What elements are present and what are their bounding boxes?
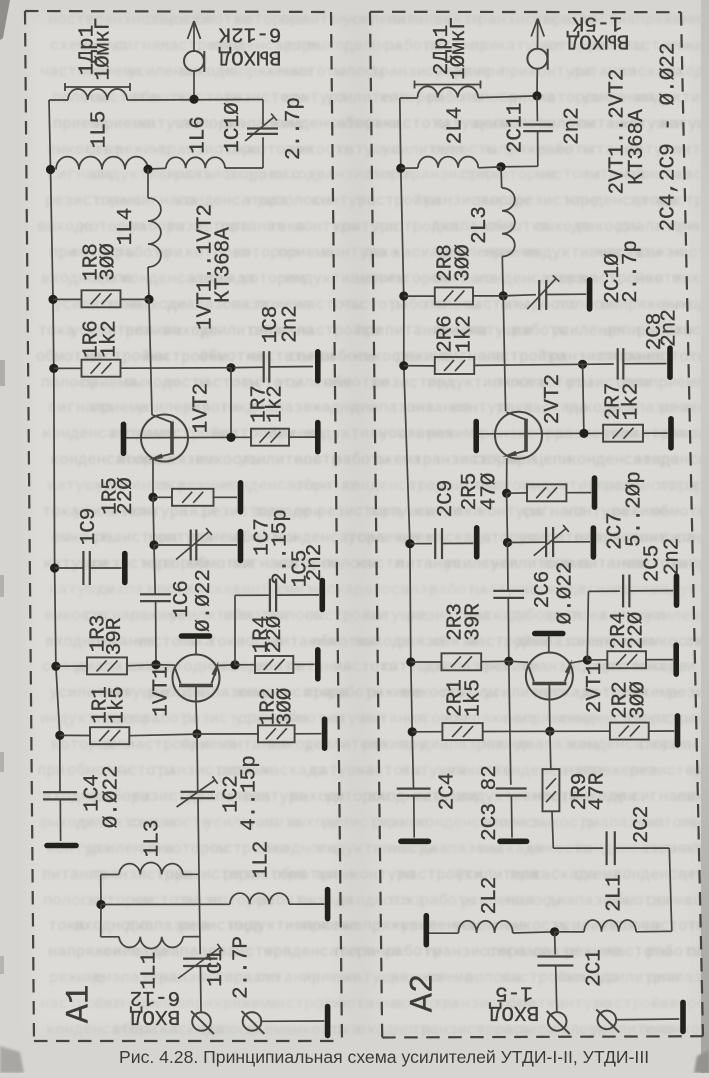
svg-text:2n2: 2n2	[562, 107, 585, 145]
svg-text:2L3: 2L3	[469, 206, 492, 244]
svg-text:КТ368А: КТ368А	[213, 227, 236, 303]
svg-text:А1: А1	[61, 985, 98, 1023]
svg-text:22Ø: 22Ø	[264, 616, 287, 654]
svg-text:2C6: 2C6	[532, 571, 555, 609]
svg-text:1L1: 1L1	[139, 952, 162, 990]
svg-text:выходедиапазонасвязиностиусиле: выходедиапазонасвязиностиусилениясвязивы…	[40, 814, 709, 832]
svg-text:1L4: 1L4	[115, 208, 138, 246]
svg-text:4..15p: 4..15p	[239, 755, 262, 831]
svg-text:Ø.Ø22: Ø.Ø22	[100, 765, 123, 828]
svg-text:1ØмкГ: 1ØмкГ	[93, 17, 116, 80]
svg-text:1L2: 1L2	[251, 841, 274, 879]
svg-text:2n2: 2n2	[659, 309, 682, 347]
svg-text:конденсатораполосысвязиемкость: конденсатораполосысвязиемкостьусилителян…	[50, 451, 709, 469]
svg-text:Рис. 4.28. Принципиальная схем: Рис. 4.28. Принципиальная схема усилител…	[119, 1047, 649, 1067]
svg-text:2..7p: 2..7p	[620, 240, 643, 303]
svg-text:2C4: 2C4	[437, 773, 460, 811]
svg-text:2n2: 2n2	[280, 305, 303, 343]
svg-text:3ØØ: 3ØØ	[628, 681, 651, 719]
svg-text:2C1: 2C1	[584, 949, 607, 987]
svg-text:2VT1: 2VT1	[584, 663, 607, 713]
svg-text:2C4,2C9 - Ø.Ø22: 2C4,2C9 - Ø.Ø22	[658, 42, 681, 231]
svg-text:1L6: 1L6	[188, 116, 211, 154]
svg-text:1k2: 1k2	[621, 383, 644, 421]
svg-text:22Ø: 22Ø	[626, 612, 649, 650]
svg-text:2..7P: 2..7P	[231, 936, 254, 999]
svg-text:47Ø: 47Ø	[479, 473, 502, 511]
svg-text:3ØØ: 3ØØ	[98, 243, 121, 281]
svg-text:6-12: 6-12	[130, 985, 180, 1008]
svg-text:1C6: 1C6	[171, 580, 194, 618]
svg-text:1ØмкГ: 1ØмкГ	[448, 17, 471, 80]
svg-text:2L2: 2L2	[479, 877, 502, 915]
svg-text:39R: 39R	[463, 603, 486, 641]
svg-text:1k2: 1k2	[99, 320, 122, 358]
svg-text:1VT2: 1VT2	[191, 383, 214, 433]
svg-text:1k2: 1k2	[265, 385, 288, 423]
svg-text:А2: А2	[405, 974, 442, 1012]
svg-text:1k5: 1k5	[463, 679, 486, 717]
svg-text:22Ø: 22Ø	[115, 477, 138, 515]
svg-text:2C9: 2C9	[435, 480, 458, 518]
svg-text:1L3: 1L3	[142, 820, 165, 858]
svg-text:5..2Øp: 5..2Øp	[624, 471, 647, 547]
svg-text:2C2: 2C2	[631, 806, 654, 844]
svg-text:1-5К: 1-5К	[571, 10, 622, 33]
svg-text:3ØØ: 3ØØ	[453, 244, 476, 282]
svg-text:1VT1: 1VT1	[151, 666, 174, 716]
svg-text:1C9: 1C9	[78, 508, 101, 546]
svg-text:ВЫХОД: ВЫХОД	[218, 45, 281, 68]
svg-text:катушкидиапазонаностикаскадако: катушкидиапазонаностикаскадаконтурасвязи…	[49, 581, 709, 599]
svg-text:2n2: 2n2	[662, 538, 685, 576]
svg-text:катушкиусилениятокарежимеконде: катушкиусилениятокарежимеконденсатораобм…	[47, 477, 709, 495]
svg-text:Ø.Ø22: Ø.Ø22	[555, 561, 578, 624]
svg-text:2n2: 2n2	[304, 544, 327, 582]
svg-text:1C1Ø: 1C1Ø	[222, 102, 245, 152]
svg-text:2VT2: 2VT2	[542, 374, 565, 424]
svg-text:2L1: 2L1	[604, 874, 627, 912]
svg-text:2C3 82: 2C3 82	[479, 765, 502, 841]
svg-text:Ø.Ø22: Ø.Ø22	[193, 569, 216, 632]
svg-text:2C11: 2C11	[505, 103, 528, 153]
svg-text:1k5: 1k5	[107, 686, 130, 724]
svg-text:47R: 47R	[587, 772, 610, 810]
svg-text:2L4: 2L4	[445, 107, 468, 145]
svg-text:1L5: 1L5	[89, 111, 112, 149]
svg-text:1k2: 1k2	[454, 315, 477, 353]
svg-text:КТ368А: КТ368А	[626, 109, 649, 185]
svg-text:1C1: 1C1	[205, 949, 228, 987]
svg-text:3ØØ: 3ØØ	[275, 688, 298, 726]
svg-text:6-12К: 6-12К	[218, 22, 281, 45]
svg-text:2..7p: 2..7p	[283, 97, 306, 160]
svg-text:39R: 39R	[104, 617, 127, 655]
svg-text:1-5: 1-5	[495, 981, 533, 1004]
